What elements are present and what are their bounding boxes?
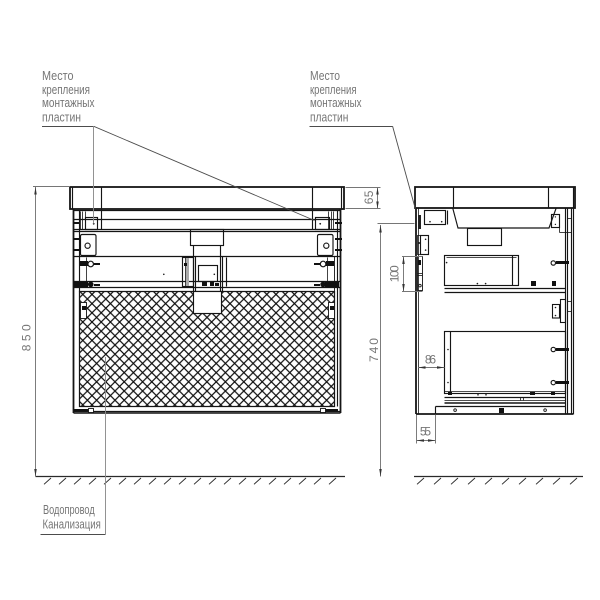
svg-text:740: 740 (367, 338, 381, 362)
svg-text:Место: Место (310, 68, 340, 83)
svg-text:55: 55 (420, 424, 432, 438)
svg-text:пластин: пластин (42, 110, 81, 125)
svg-text:монтажных: монтажных (42, 95, 95, 110)
svg-text:пластин: пластин (310, 110, 348, 125)
svg-text:Канализация: Канализация (43, 516, 101, 531)
svg-text:монтажных: монтажных (310, 95, 362, 110)
svg-text:100: 100 (388, 265, 402, 282)
svg-text:Водопровод: Водопровод (43, 502, 95, 517)
svg-text:65: 65 (362, 190, 376, 204)
svg-text:86: 86 (425, 352, 437, 366)
svg-text:Место: Место (42, 68, 74, 83)
svg-text:850: 850 (20, 324, 34, 351)
